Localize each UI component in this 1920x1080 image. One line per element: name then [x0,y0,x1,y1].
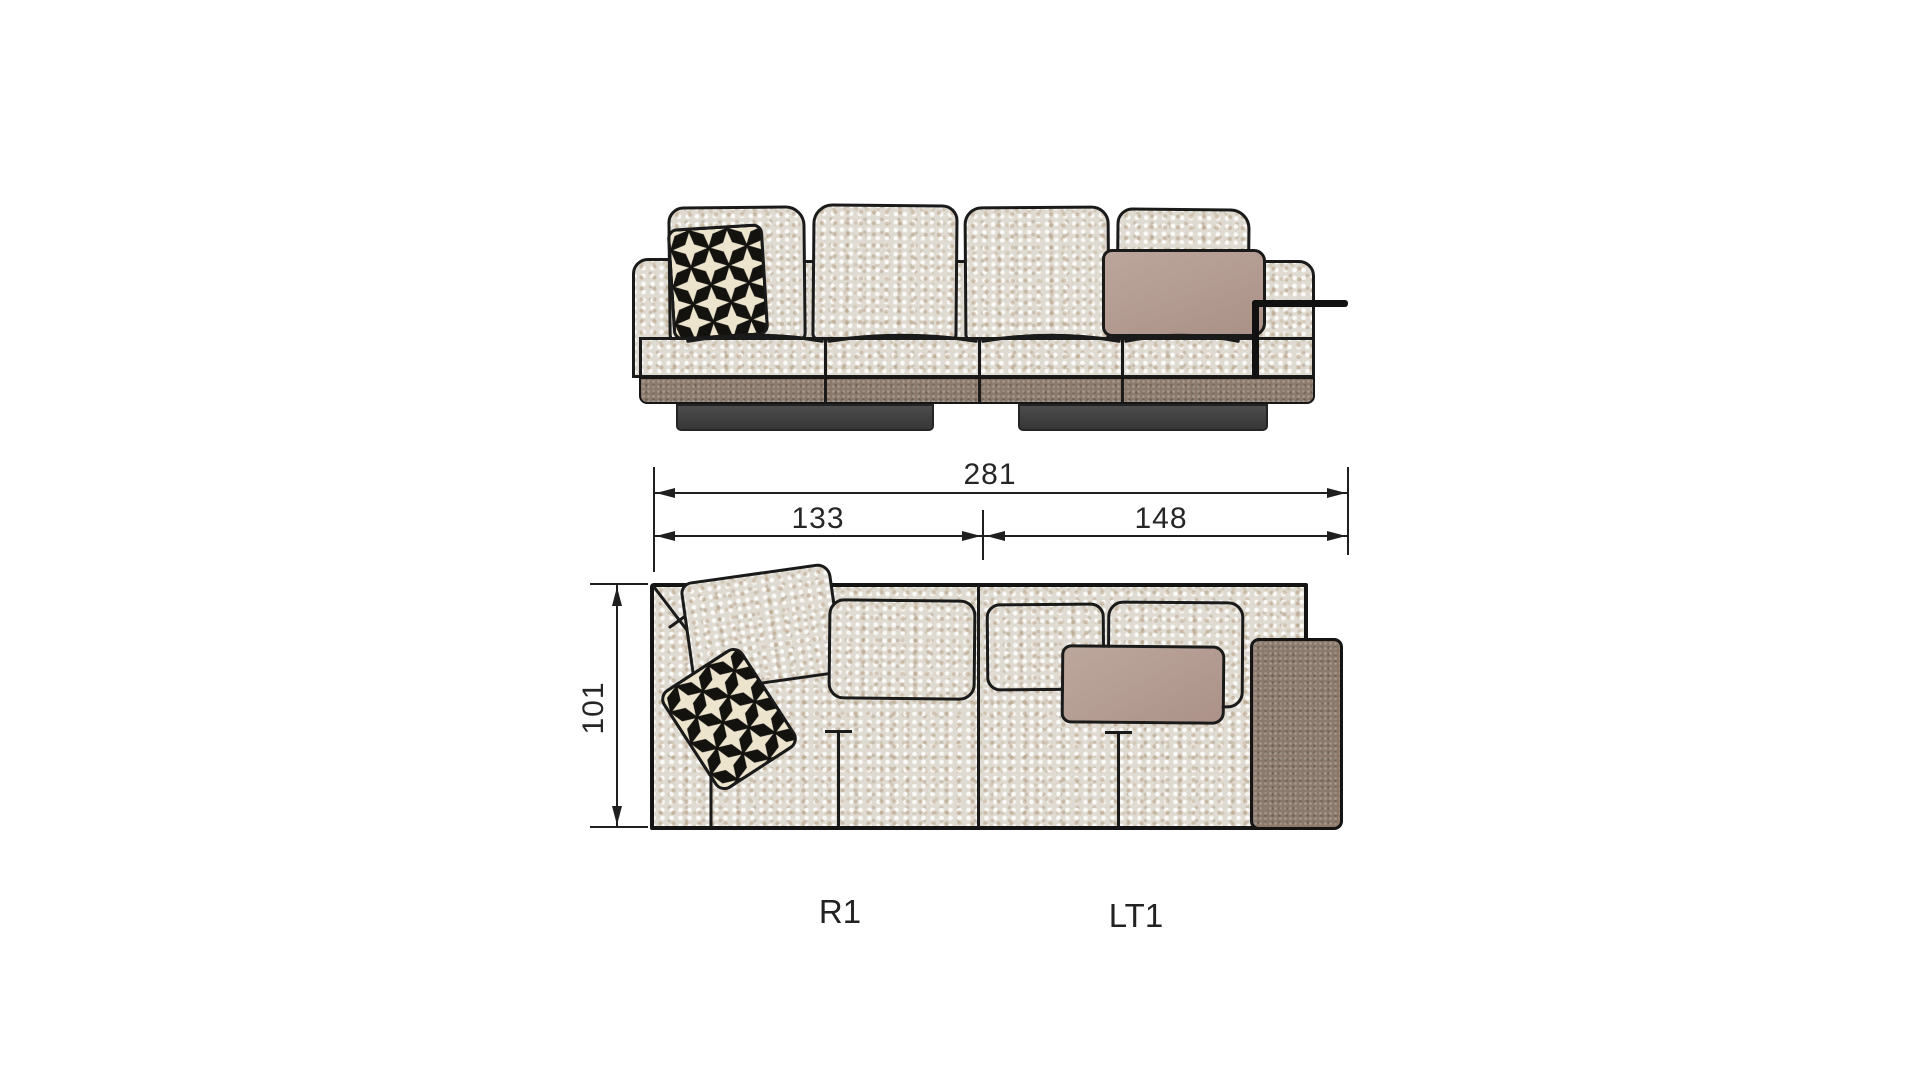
elevation-back-cushion-3 [964,205,1111,342]
elevation-plinth-seam-1 [824,379,827,402]
diagram-canvas: 281 133 148 101 [0,0,1920,1080]
dim-101-arrow-bottom [612,806,622,825]
plan-chaise-pad [1250,638,1343,830]
dim-281-line [654,492,1348,494]
extension-line-right [1347,467,1349,555]
plan-module-divider [977,585,980,828]
dim-101-line [616,585,618,827]
module-label-left: R1 [800,893,880,931]
elevation-back-cushion-2 [811,203,958,342]
dim-101-arrow-top [612,587,622,606]
plan-seat-seam-left [837,731,840,829]
dim-133-arrow-left [656,531,675,541]
cushion-sag-lines [639,324,1315,346]
extension-line-left [653,467,655,572]
elevation-ledge-horizontal [1252,300,1348,307]
plan-seat-tick-right [1105,731,1132,734]
dim-281-arrow-left [656,488,675,498]
dim-281-arrow-right [1327,488,1346,498]
houndstooth-pattern [670,226,766,337]
plan-back-pillow-2 [827,598,976,701]
dim-148-arrow-right [1327,531,1346,541]
elevation-foot-left [676,404,934,431]
elevation-plinth-seam-2 [978,379,981,402]
dim-101-tick-top [590,583,648,585]
dim-101-tick-bottom [590,826,648,828]
dim-133-arrow-right [962,531,981,541]
elevation-plinth-seam-3 [1121,379,1124,402]
dim-right-module-label: 148 [1121,502,1201,536]
dim-overall-width-label: 281 [950,458,1030,492]
module-label-right: LT1 [1096,897,1176,935]
dim-depth-label: 101 [577,668,611,748]
plan-seat-seam-right [1117,732,1120,829]
dim-148-arrow-left [986,531,1005,541]
plan-seat-tick-left [825,730,852,733]
dim-left-module-label: 133 [778,502,858,536]
plan-mauve-pillow [1061,644,1226,724]
elevation-plinth [639,377,1315,404]
elevation-foot-right [1018,404,1268,431]
elevation-ledge-vertical [1252,300,1259,378]
